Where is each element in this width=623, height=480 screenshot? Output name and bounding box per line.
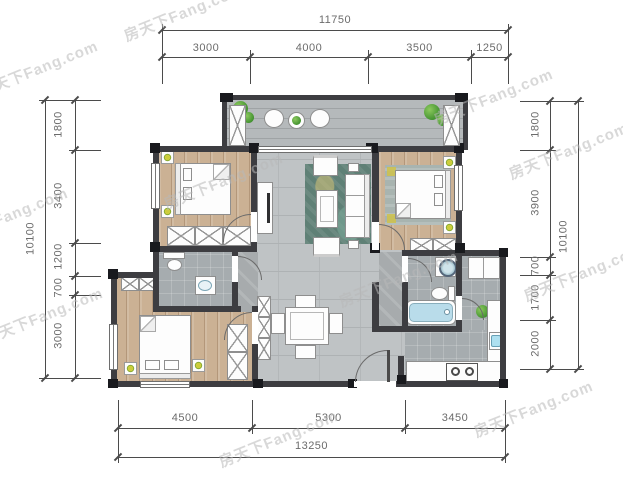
wall	[222, 95, 468, 100]
window-icon	[109, 324, 118, 370]
dim-label: 1700	[530, 276, 543, 320]
dim-label: 3900	[530, 181, 543, 225]
fridge-divider	[483, 258, 484, 278]
side-table-icon	[348, 163, 359, 172]
dim-label: 3450	[405, 412, 505, 425]
wardrobe-icon	[167, 226, 195, 246]
blanket-fold	[213, 164, 230, 180]
pillow-icon	[434, 175, 443, 188]
dim-label: 3000	[53, 314, 66, 358]
wall	[402, 250, 462, 256]
dining-chair-icon	[329, 313, 343, 334]
wall	[372, 146, 379, 222]
pillow-icon	[434, 193, 443, 206]
potted-plant-icon	[443, 221, 456, 234]
wall	[402, 326, 462, 332]
column	[397, 375, 406, 384]
dim-label-left-total: 10100	[25, 211, 38, 267]
toilet-icon	[431, 287, 448, 300]
armchair-icon	[313, 155, 338, 176]
wall	[153, 146, 257, 152]
door-opening	[372, 222, 379, 250]
bed-headboard	[139, 373, 191, 379]
dim-line	[162, 30, 508, 31]
wall	[153, 246, 257, 252]
floor-plan-image: 11750 3000 4000 3500 1250 10100 1800 340…	[0, 0, 623, 480]
column	[499, 379, 508, 388]
dim-label-top-total: 11750	[162, 14, 508, 27]
dining-chair-icon	[271, 313, 285, 334]
toilet-icon	[163, 252, 185, 259]
column	[108, 269, 118, 279]
wall	[402, 282, 408, 332]
stove-burner	[451, 367, 460, 376]
dim-line	[118, 457, 505, 458]
closet-icon	[257, 317, 271, 338]
column	[499, 248, 508, 257]
tv-icon	[267, 193, 270, 223]
washer-drum	[439, 259, 457, 277]
door-opening	[252, 312, 258, 344]
side-table-icon	[348, 240, 359, 249]
sofa-cushion-line	[346, 195, 364, 196]
coffee-table-inner	[320, 196, 334, 222]
toilet-icon	[448, 286, 455, 301]
wall	[500, 250, 506, 387]
sink-basin	[198, 280, 212, 291]
wall	[251, 146, 257, 212]
dim-line	[45, 100, 46, 378]
door-opening	[251, 212, 257, 242]
bathtub-drain	[444, 309, 450, 315]
wall	[222, 95, 227, 150]
dim-label: 1800	[53, 103, 66, 147]
balcony-sliding-door	[258, 146, 372, 153]
wall	[372, 146, 462, 152]
column	[455, 93, 468, 102]
wall	[396, 381, 506, 387]
equipment-platform-icon	[443, 105, 460, 146]
potted-plant-icon	[192, 359, 205, 372]
wardrobe-icon	[195, 226, 223, 246]
toilet-icon	[167, 259, 182, 271]
dim-line	[578, 101, 579, 369]
pillow-icon	[183, 187, 192, 200]
dining-table-inner	[290, 312, 324, 340]
dim-label: 3000	[162, 42, 250, 55]
pillow-icon	[164, 360, 179, 370]
dim-line	[550, 101, 551, 369]
closet-icon	[257, 338, 271, 360]
tv-cabinet-icon	[257, 182, 273, 234]
pillow-icon	[145, 360, 160, 370]
balcony-chair-icon	[264, 109, 284, 128]
column	[150, 143, 160, 153]
dim-label: 1800	[530, 103, 543, 147]
wall	[258, 381, 354, 387]
potted-plant-icon	[161, 151, 174, 164]
window-icon	[454, 165, 463, 211]
closet-icon	[257, 296, 271, 317]
cabinet-icon	[121, 277, 139, 291]
blanket-fold	[396, 203, 411, 218]
bed-headboard	[445, 170, 451, 219]
dim-label: 3400	[53, 174, 66, 218]
sofa-cushion-line	[346, 216, 364, 217]
potted-plant-icon	[161, 205, 174, 218]
wall	[372, 282, 379, 328]
wall	[111, 272, 159, 278]
sofa-backrest	[364, 174, 370, 238]
wall	[463, 95, 468, 150]
fridge-icon	[468, 257, 500, 279]
dim-label-right-total: 10100	[558, 209, 571, 265]
column	[108, 379, 118, 388]
dim-line	[118, 428, 505, 429]
balcony-chair-icon	[310, 109, 330, 128]
dim-label: 4000	[250, 42, 368, 55]
dim-label: 1250	[471, 42, 508, 55]
dim-line	[39, 100, 101, 101]
blanket-fold	[140, 316, 156, 332]
equipment-platform-icon	[229, 105, 246, 146]
hallway-right-floor	[379, 252, 403, 328]
wardrobe-icon	[227, 352, 248, 380]
wall	[153, 306, 241, 312]
dim-label-bottom-total: 13250	[118, 440, 505, 453]
wall	[456, 250, 462, 296]
stove-burner	[465, 367, 474, 376]
dim-label: 5300	[252, 412, 405, 425]
dim-label: 4500	[118, 412, 252, 425]
entrance-door-leaf	[387, 350, 390, 382]
potted-plant-icon	[124, 362, 137, 375]
column	[253, 379, 263, 388]
dim-label: 2000	[530, 322, 543, 366]
window-icon	[140, 381, 190, 388]
plant-icon	[292, 116, 301, 125]
bed-headboard	[175, 163, 181, 215]
column	[150, 242, 160, 252]
dim-label: 3500	[368, 42, 471, 55]
wall	[372, 326, 406, 332]
pillow-icon	[183, 168, 192, 181]
dim-line	[39, 378, 101, 379]
dining-chair-icon	[295, 345, 316, 359]
column	[220, 93, 233, 102]
armchair-icon	[313, 237, 340, 257]
window-icon	[151, 163, 160, 209]
dim-label: 700	[53, 266, 66, 310]
column	[455, 243, 465, 253]
dim-line	[162, 57, 508, 58]
watermark: 房天下Fang.com	[0, 35, 101, 102]
